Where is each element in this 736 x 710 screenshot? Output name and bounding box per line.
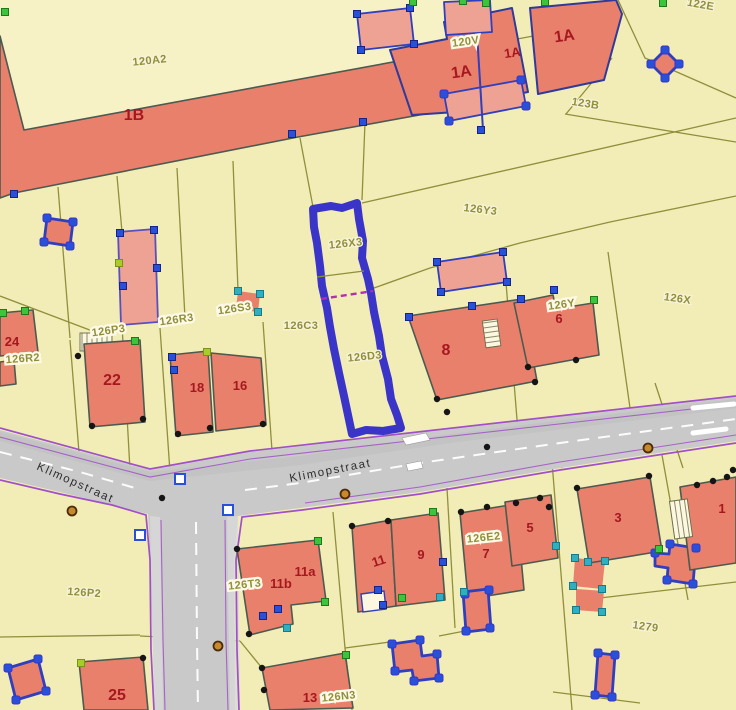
boundary-dot-black [484,444,490,450]
vertex-marker-green [2,9,9,16]
map-label: 5 [526,520,533,535]
boundary-dot-black [546,504,552,510]
boundary-dot-black [349,523,355,529]
road-point-marker [175,474,185,484]
building-small-bottomright[interactable] [595,653,615,697]
boundary-dot-black [525,364,531,370]
map-label: 18 [190,380,204,395]
vertex-blob-blue [661,74,669,82]
vertex-blob-blue [66,242,74,250]
vertex-blob-blue [689,580,697,588]
vertex-marker-blue [275,606,282,613]
boundary-dot-black [75,353,81,359]
road-point-marker [223,505,233,515]
vertex-blob-blue [34,655,42,663]
vertex-blob-blue [40,238,48,246]
map-label: 22 [103,372,121,389]
boundary-dot-black [261,687,267,693]
map-label: 126P2 [67,586,102,600]
boundary-dot-black [694,482,700,488]
boundary-dot-black [259,665,265,671]
vertex-blob-blue [391,667,399,675]
vertex-marker-cyan [585,559,592,566]
vertex-marker-green [483,0,490,7]
vertex-marker-cyan [257,291,264,298]
vertex-marker-blue [154,265,161,272]
boundary-dot-black [724,474,730,480]
vertex-marker-blue [11,191,18,198]
vertex-blob-blue [440,90,448,98]
map-label: 9 [417,547,424,562]
survey-circle-brown [68,507,77,516]
boundary-dot-black [574,485,580,491]
map-label: 16 [233,378,247,393]
vertex-marker-cyan [437,594,444,601]
vertex-blob-blue [4,664,12,672]
vertex-blob-blue [611,651,619,659]
vertex-marker-blue [171,367,178,374]
vertex-blob-blue [388,640,396,648]
vertex-marker-blue [358,47,365,54]
vertex-marker-cyan [572,555,579,562]
vertex-blob-blue [591,691,599,699]
vertex-marker-green [660,0,667,7]
vertex-blob-blue [486,624,494,632]
vertex-marker-green [132,338,139,345]
vertex-marker-cyan [599,586,606,593]
map-label: 1A [503,44,522,61]
vertex-blob-blue [675,60,683,68]
vertex-blob-blue [485,586,493,594]
vertex-marker-blue [260,613,267,620]
map-label: 11b [270,576,292,591]
boundary-dot-black [537,495,543,501]
vertex-marker-blue [117,230,124,237]
vertex-marker-blue [551,287,558,294]
map-label: 13 [303,690,317,705]
vertex-marker-cyan [284,625,291,632]
vertex-marker-green [315,538,322,545]
boundary-dot-black [573,357,579,363]
vertex-blob-blue [69,218,77,226]
vertex-blob-blue [692,544,700,552]
map-label: 8 [442,342,451,359]
boundary-dot-black [246,631,252,637]
boundary-dot-black [159,495,165,501]
vertex-blob-blue [594,649,602,657]
map-label: 1 [718,501,725,516]
vertex-marker-cyan [255,309,262,316]
vertex-marker-blue [289,131,296,138]
vertex-marker-green [22,308,29,315]
vertex-blob-blue [410,677,418,685]
map-canvas[interactable]: 120A21B120V1A1A1A122E123B126Y3126X3126X1… [0,0,736,710]
vertex-marker-blue [504,279,511,286]
boundary-dot-black [207,425,213,431]
map-label: 1B [124,107,144,124]
map-label: 25 [108,687,126,704]
vertex-marker-blue [360,119,367,126]
vertex-blob-blue [666,540,674,548]
vertex-marker-green [399,595,406,602]
map-label: 1A [450,63,473,83]
vertex-marker-blue [500,249,507,256]
vertex-marker-blue [380,602,387,609]
vertex-marker-green [322,599,329,606]
vertex-marker-blue [406,314,413,321]
boundary-dot-black [532,379,538,385]
boundary-dot-black [444,409,450,415]
building-square-bottomleft[interactable] [8,659,46,700]
vertex-blob-blue [661,46,669,54]
vertex-marker-green [343,652,350,659]
boundary-dot-black [458,509,464,515]
vertex-marker-cyan [235,288,242,295]
boundary-dot-black [140,655,146,661]
vertex-blob-blue [416,636,424,644]
boundary-dot-black [175,431,181,437]
vertex-blob-blue [435,674,443,682]
vertex-blob-blue [663,576,671,584]
vertex-blob-blue [517,76,525,84]
boundary-dot-black [730,467,736,473]
vertex-marker-cyan [570,583,577,590]
vertex-blob-blue [647,60,655,68]
vertex-marker-blue [354,11,361,18]
vertex-marker-blue [411,41,418,48]
vertex-marker-green [542,0,549,6]
vertex-marker-lime [116,260,123,267]
boundary-dot-black [484,504,490,510]
boundary-dot-black [646,473,652,479]
survey-circle-brown [341,490,350,499]
vertex-marker-blue [440,559,447,566]
map-label: 126R2 [5,352,40,366]
cadastral-map[interactable]: 120A21B120V1A1A1A122E123B126Y3126X3126X1… [0,0,736,710]
vertex-blob-blue [433,650,441,658]
vertex-marker-green [460,0,467,5]
vertex-marker-green [656,546,663,553]
boundary-dot-black [385,518,391,524]
boundary-dot-black [260,421,266,427]
map-label: 6 [555,311,562,326]
building-1A-small-a[interactable] [357,8,414,50]
survey-circle-brown [214,642,223,651]
map-label: 7 [482,546,489,561]
vertex-marker-blue [478,127,485,134]
vertex-marker-green [410,0,417,6]
map-label: 1A [553,27,576,47]
vertex-marker-blue [518,296,525,303]
vertex-marker-blue [169,354,176,361]
building-tall-narrow[interactable] [118,229,158,325]
map-label: 3 [614,510,621,525]
vertex-blob-blue [522,102,530,110]
boundary-dot-black [513,500,519,506]
vertex-blob-blue [608,693,616,701]
vertex-blob-blue [12,696,20,704]
vertex-marker-cyan [553,543,560,550]
road-point-marker [135,530,145,540]
boundary-dot-black [710,478,716,484]
vertex-blob-blue [43,214,51,222]
annex-hatched-8 [482,319,501,348]
vertex-marker-cyan [599,609,606,616]
vertex-blob-blue [462,627,470,635]
vertex-marker-lime [78,660,85,667]
survey-circle-brown [644,444,653,453]
boundary-dot-black [434,396,440,402]
vertex-marker-green [430,509,437,516]
vertex-marker-cyan [602,558,609,565]
boundary-dot-black [89,423,95,429]
map-label: 126C3 [284,320,318,332]
vertex-blob-blue [42,687,50,695]
map-label: 11a [295,564,317,579]
vertex-marker-blue [438,289,445,296]
vertex-marker-green [591,297,598,304]
vertex-marker-blue [469,303,476,310]
vertex-marker-blue [120,283,127,290]
vertex-marker-cyan [461,589,468,596]
vertex-marker-green [0,310,7,317]
vertex-marker-cyan [573,607,580,614]
vertex-marker-lime [204,349,211,356]
vertex-blob-blue [445,117,453,125]
boundary-dot-black [140,416,146,422]
vertex-marker-blue [151,227,158,234]
vertex-marker-blue [434,259,441,266]
boundary-dot-black [234,546,240,552]
map-label: 24 [5,334,20,349]
vertex-marker-blue [375,587,382,594]
